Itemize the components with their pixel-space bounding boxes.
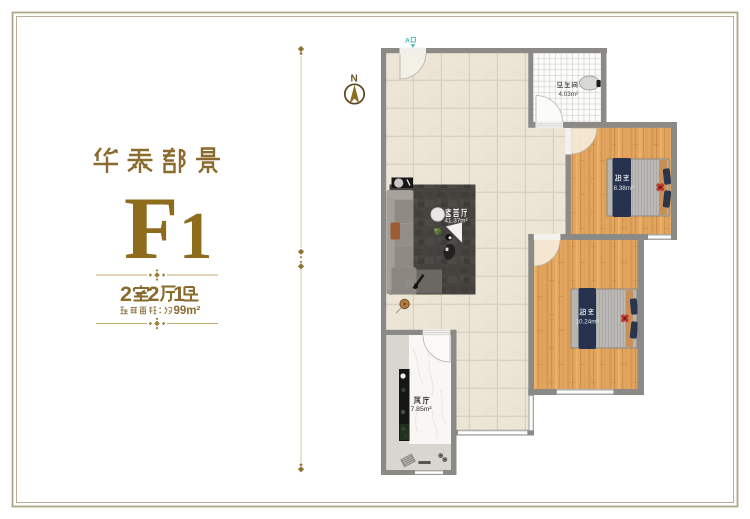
svg-text:1: 1 xyxy=(179,199,213,273)
svg-text:2: 2 xyxy=(120,282,132,306)
svg-text:F: F xyxy=(124,180,178,278)
svg-text:99m²: 99m² xyxy=(174,305,201,317)
svg-text:10.24m²: 10.24m² xyxy=(576,319,599,326)
svg-text::: : xyxy=(159,305,162,316)
svg-text:7.85m²: 7.85m² xyxy=(411,406,433,413)
svg-text:4.03m²: 4.03m² xyxy=(559,91,579,98)
svg-text:1: 1 xyxy=(173,282,185,306)
svg-text:N: N xyxy=(351,74,358,85)
svg-text:A: A xyxy=(405,38,410,45)
svg-text:2: 2 xyxy=(148,282,160,306)
svg-text:41.37m²: 41.37m² xyxy=(445,218,468,225)
svg-text:8.38m²: 8.38m² xyxy=(614,185,634,192)
